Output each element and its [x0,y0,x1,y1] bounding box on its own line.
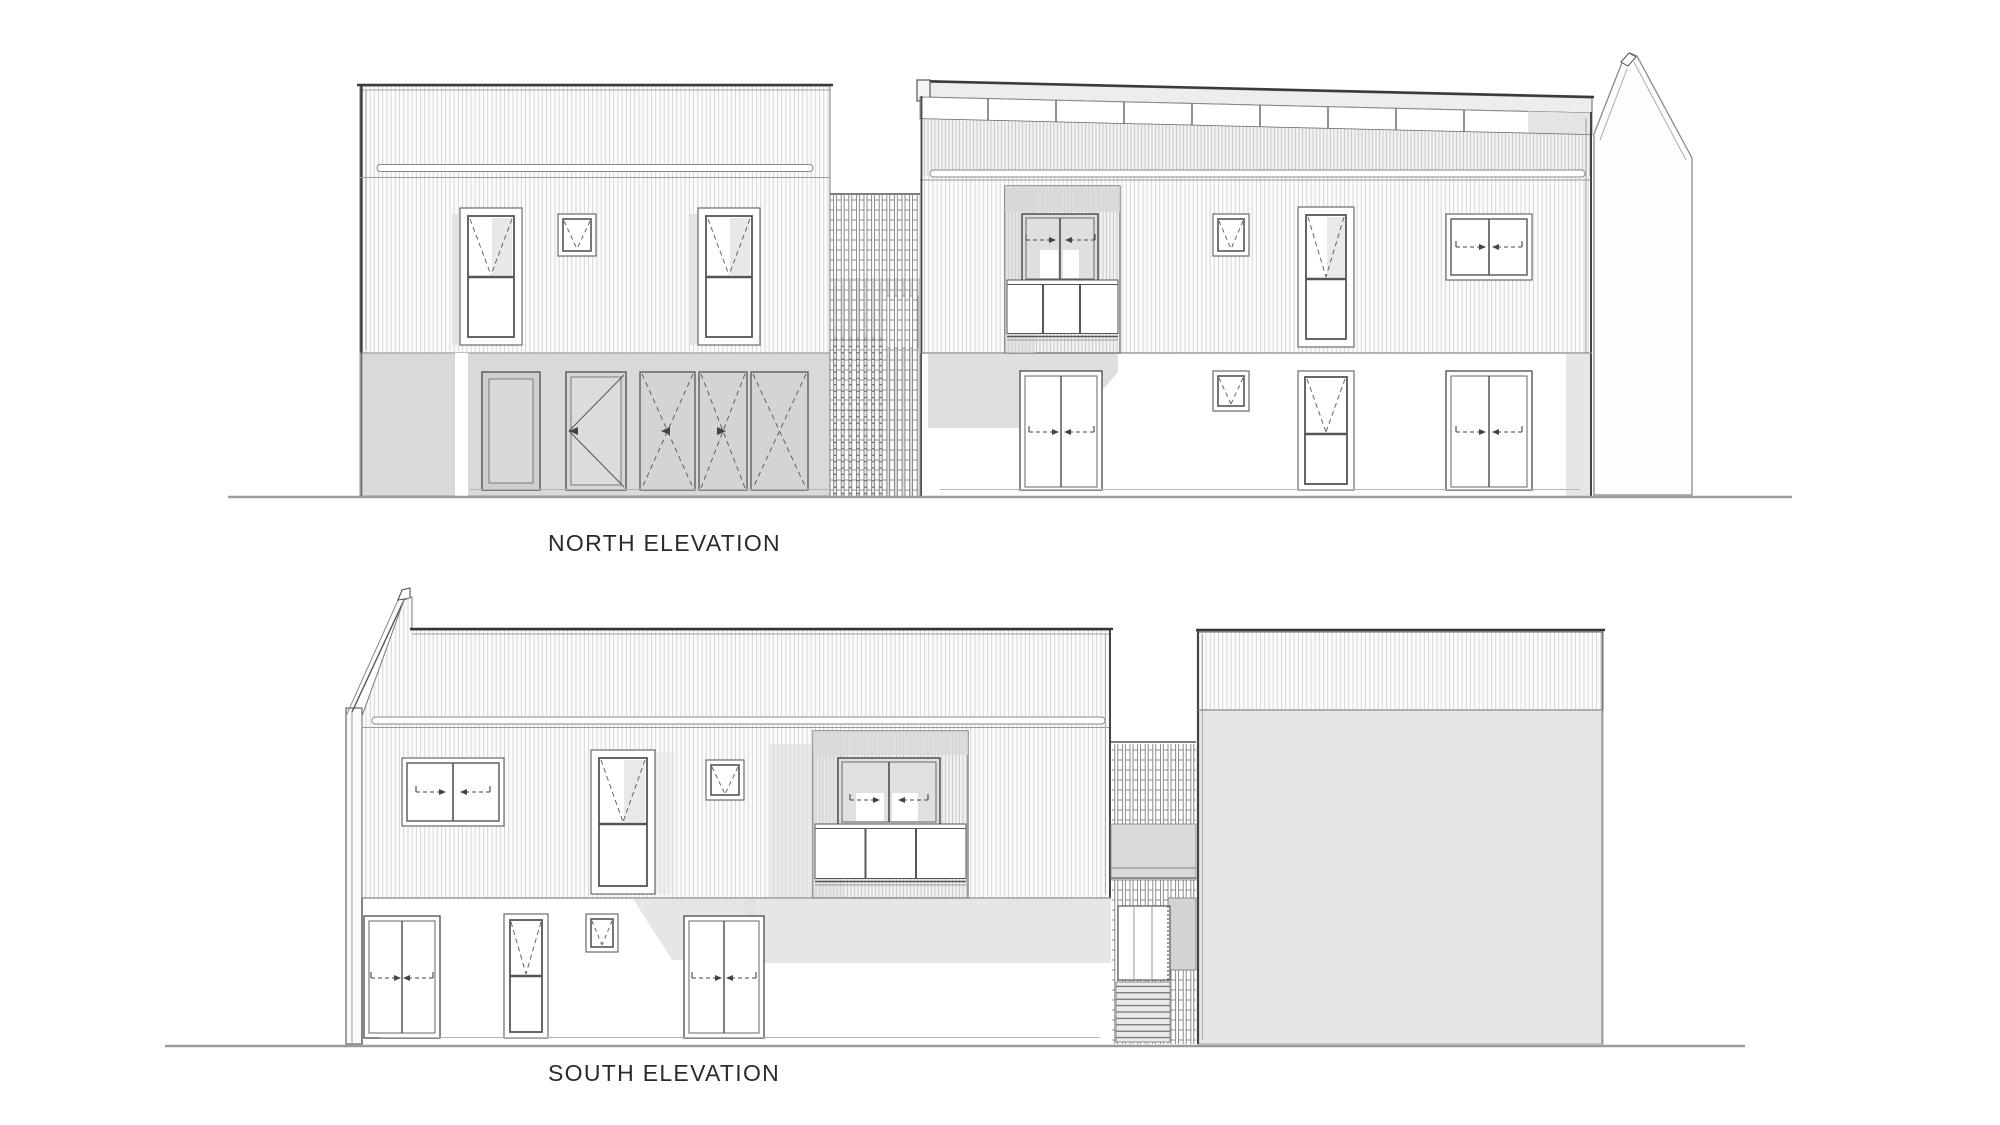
south-window-tall-ground [504,914,548,1038]
south-window-square-ground [586,914,618,952]
south-right-building [1196,630,1605,1044]
north-left-window-tall-2 [690,208,760,345]
architectural-elevation-sheet: NORTH ELEVATION SOUTH ELEVATION [0,0,2000,1125]
south-window-tall-upper [591,750,655,894]
north-right-slider-door-2 [1446,371,1532,490]
north-right-window-square-upper [1213,214,1249,256]
south-stair-bay [1111,630,1196,1044]
north-door-hinged [566,372,626,490]
south-recessed-balcony [813,731,968,898]
north-right-window-tall-upper [1298,207,1354,347]
north-left-building [357,85,833,496]
north-right-window-tall-ground [1298,371,1354,490]
elevation-drawing [0,0,2000,1125]
north-adjacent-gable [1594,53,1692,495]
south-stair-railing [1118,906,1170,980]
north-elevation [228,53,1792,497]
north-left-window-tall-1 [452,208,522,345]
north-left-window-square [558,214,596,256]
north-door-panel [482,372,540,490]
south-left-building [362,597,1113,1044]
south-elevation [165,588,1745,1046]
north-stair-screen [830,194,922,496]
north-right-slider-door-1 [1020,371,1102,490]
north-right-window-square-ground [1213,371,1249,411]
north-elevation-label: NORTH ELEVATION [548,530,781,557]
south-window-square-upper [706,760,744,800]
south-elevation-label: SOUTH ELEVATION [548,1060,780,1087]
south-stair-steps [1116,982,1170,1042]
south-slider-door-1 [364,916,440,1038]
south-slider-door-2 [684,916,764,1038]
north-right-building [917,80,1594,496]
north-right-window-slider-upper [1446,214,1532,280]
north-recessed-balcony [1005,186,1120,353]
north-doors-x-leaves [640,372,808,490]
south-window-slider-upper [402,758,504,826]
